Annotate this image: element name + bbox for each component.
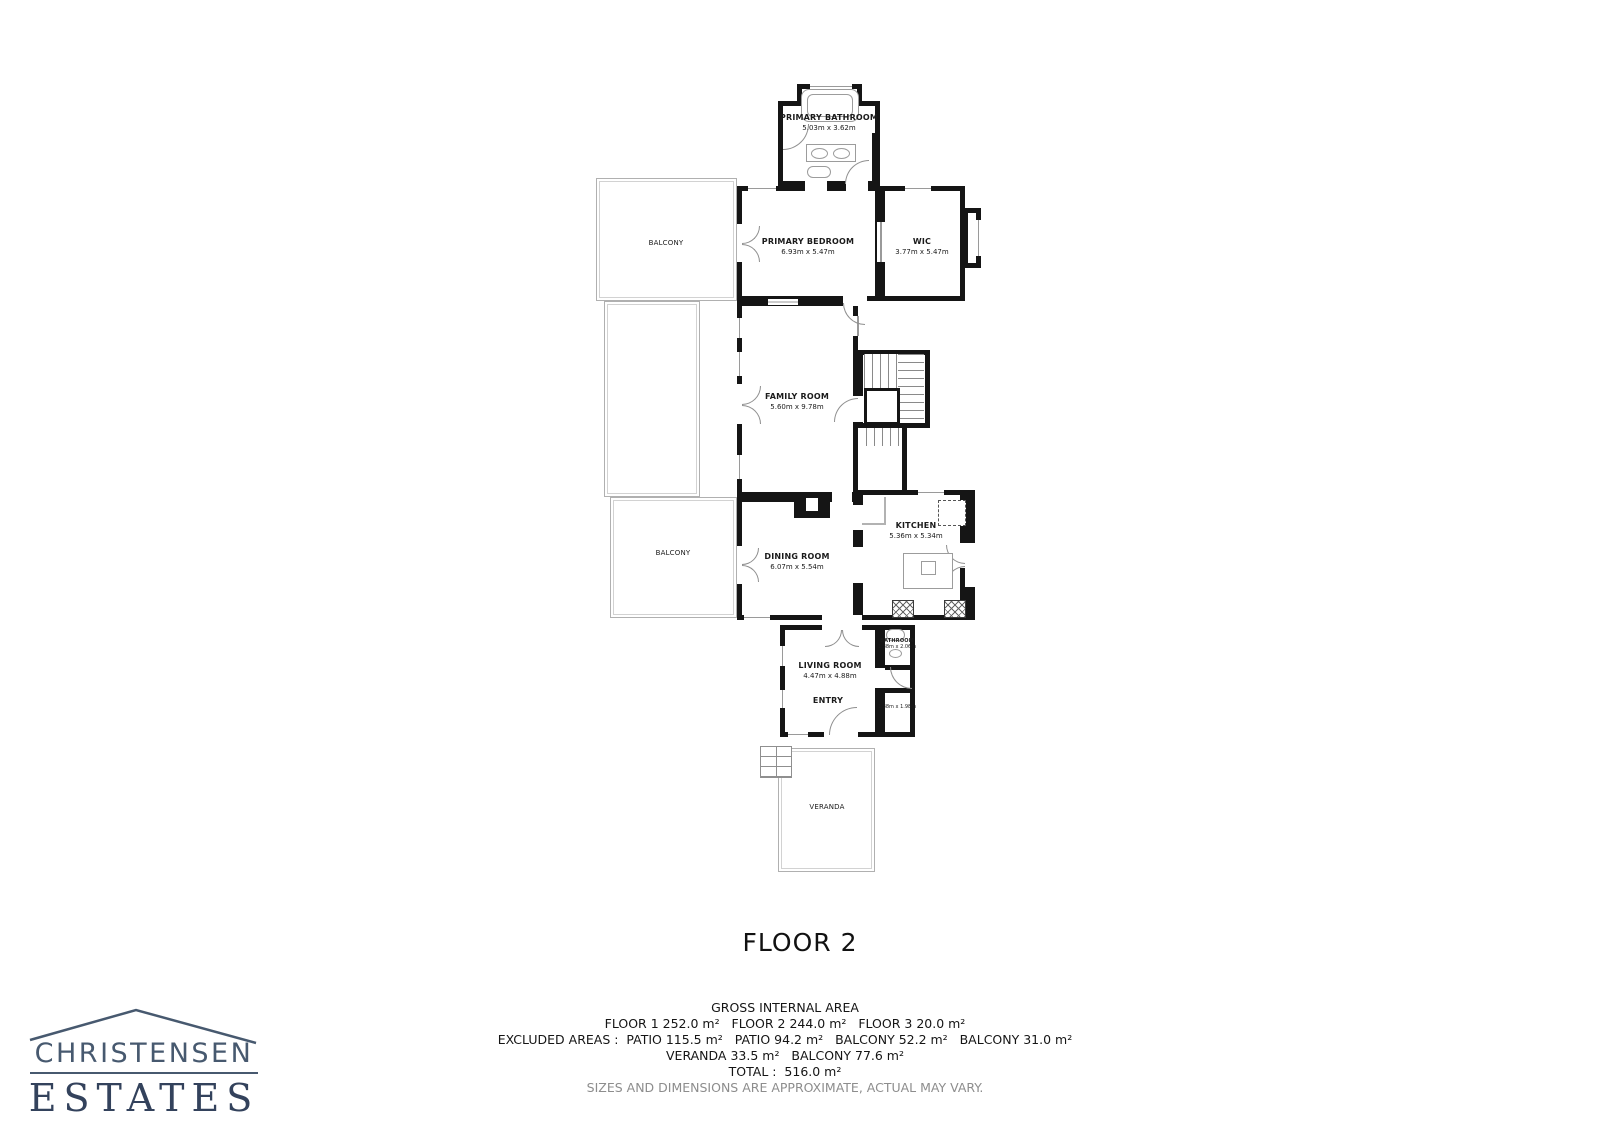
floor-title: FLOOR 2	[0, 928, 1600, 957]
toilet-primary	[807, 166, 831, 178]
vanity-sink-left	[811, 148, 828, 159]
room-label-entry: ENTRY	[813, 696, 843, 707]
wic-sliding-door	[877, 222, 885, 262]
room-label-family-room: FAMILY ROOM 5.60m x 9.78m	[765, 392, 829, 412]
window-kitchen-top	[918, 490, 944, 495]
wall-stair-passage	[902, 428, 907, 490]
room-label-veranda: VERANDA	[809, 803, 844, 812]
counter-edge-vertical	[884, 497, 886, 525]
door-small-bathroom	[890, 667, 912, 689]
room-label-small-bathroom: BATHROOM 1.38m x 2.06m	[878, 638, 916, 650]
counter-edge-horizontal	[862, 523, 886, 525]
opening-dining-bottom	[822, 615, 862, 620]
sink-small	[889, 649, 902, 658]
logo-divider	[30, 1072, 258, 1074]
floorplan-page: PRIMARY BATHROOM 5.03m x 3.62m PRIMARY B…	[0, 0, 1600, 1131]
opening-living-hall	[875, 668, 885, 688]
window-wic-top	[905, 186, 931, 191]
christensen-estates-logo: CHRISTENSEN ESTATES	[28, 988, 260, 1128]
opening-family-dining	[832, 492, 852, 502]
window-bedroom-top	[748, 186, 776, 191]
fireplace-hearth	[806, 498, 818, 511]
room-label-balcony-lower: BALCONY	[656, 549, 691, 558]
window-family-left-2	[737, 352, 742, 376]
window-living-left-1	[780, 646, 785, 666]
window-dining-bottom	[744, 615, 770, 620]
window-family-top	[768, 299, 798, 305]
window-wic-bay	[976, 220, 981, 256]
room-label-living-room: LIVING ROOM 4.47m x 4.88m	[798, 661, 861, 681]
room-label-primary-bedroom: PRIMARY BEDROOM 6.93m x 5.47m	[762, 237, 854, 257]
appliance-right	[944, 600, 966, 618]
room-label-kitchen: KITCHEN 5.36m x 5.34m	[889, 521, 942, 541]
room-label-closet: 1.38m x 1.98m	[878, 704, 916, 710]
logo-text-estates: ESTATES	[28, 1076, 260, 1120]
veranda-steps	[760, 746, 792, 778]
opening-dining-kitchen	[853, 547, 863, 583]
opening-kitchen-patio	[965, 543, 975, 587]
logo-text-christensen: CHRISTENSEN	[28, 1038, 260, 1069]
window-living-left-2	[780, 690, 785, 708]
appliance-left	[892, 600, 914, 618]
stair-treads-right	[898, 354, 924, 422]
room-label-balcony-upper: BALCONY	[649, 239, 684, 248]
stair-treads-lower	[866, 428, 900, 446]
opening-passage-kitchen	[853, 505, 863, 530]
window-family-left-3	[737, 455, 742, 479]
wall-closet	[880, 688, 915, 737]
window-living-bottom	[788, 732, 808, 737]
vanity-sink-right	[833, 148, 850, 159]
opening-bath-bedroom-1	[805, 181, 827, 191]
balcony-connector-outline	[604, 301, 700, 497]
stair-landing	[864, 388, 900, 425]
room-label-dining-room: DINING ROOM 6.07m x 5.54m	[764, 552, 829, 572]
wall-bathroom-stub	[872, 133, 877, 186]
window-family-left-1	[737, 318, 742, 338]
room-label-wic: WIC 3.77m x 5.47m	[895, 237, 948, 257]
island-sink	[921, 561, 936, 575]
room-label-primary-bathroom: PRIMARY BATHROOM 5.03m x 3.62m	[780, 113, 878, 133]
